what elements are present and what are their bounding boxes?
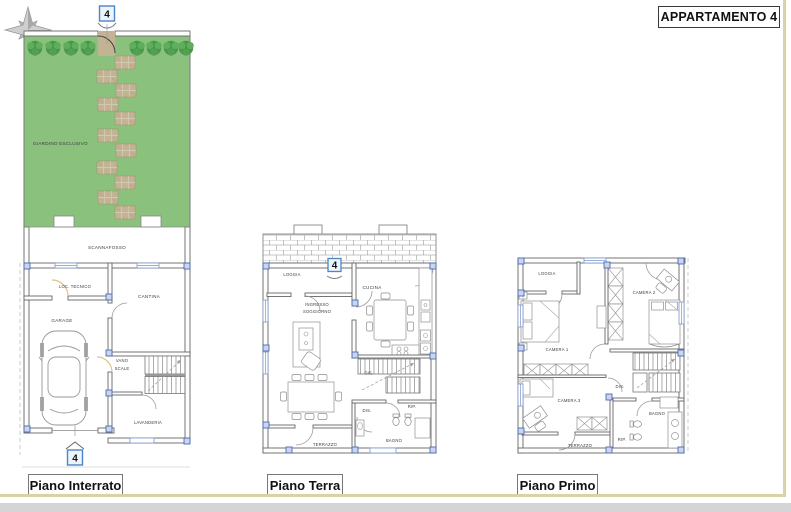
room-label-cantina: CANTINA bbox=[138, 294, 161, 299]
kitchen-table bbox=[367, 293, 414, 347]
dining-table bbox=[281, 375, 342, 420]
garden: GIARDINO ESCLUSIVO bbox=[24, 31, 194, 227]
door-arc bbox=[142, 395, 156, 409]
door-arc bbox=[97, 357, 112, 372]
plan-primo: LOGGIA CAMERA 2 bbox=[518, 258, 688, 453]
paved-band bbox=[263, 234, 436, 263]
svg-text:4: 4 bbox=[104, 10, 110, 21]
room-label-rip-terra: RIP. bbox=[408, 404, 416, 409]
wardrobe-vertical bbox=[608, 268, 623, 340]
svg-text:SOGGIORNO: SOGGIORNO bbox=[303, 309, 332, 314]
floorplan-drawing: N GIARDINO ESCLUSIVO 4 bbox=[0, 0, 791, 512]
room-label-dis-primo: DIS. bbox=[616, 384, 625, 389]
window-bottom-strip bbox=[0, 503, 791, 512]
room-label-giardino: GIARDINO ESCLUSIVO bbox=[33, 141, 88, 146]
door-arc bbox=[296, 428, 313, 445]
bed-camera2 bbox=[649, 300, 680, 347]
living-cabinet bbox=[293, 322, 322, 371]
room-label-rip-primo: RIP. bbox=[618, 437, 626, 442]
car-icon bbox=[39, 331, 89, 425]
room-label-dis2: DIS. bbox=[363, 408, 372, 413]
bed-camera3 bbox=[520, 379, 553, 397]
unit-marker-bottom: 4 bbox=[66, 442, 84, 465]
sheet-border-bottom bbox=[0, 494, 786, 497]
room-label-ingresso: INGRESSO bbox=[305, 302, 329, 307]
scannafosso: SCANNAFOSSO bbox=[24, 227, 190, 263]
window bbox=[263, 300, 268, 322]
room-label-garage: GARAGE bbox=[51, 318, 72, 323]
svg-text:4: 4 bbox=[72, 454, 78, 465]
window bbox=[518, 305, 523, 327]
room-label-bagno-terra: BAGNO bbox=[386, 438, 403, 443]
desk-camera3 bbox=[523, 406, 552, 435]
plan-terra: LOGGIA 4 INGRESSO SOGGIORNO CUCINA bbox=[263, 225, 436, 453]
unit-marker-terra: 4 bbox=[327, 259, 342, 279]
room-label-terrazzo-primo: TERRAZZO bbox=[568, 443, 593, 448]
room-label-bagno-primo: BAGNO bbox=[649, 411, 666, 416]
room-label-lavanderia: LAVANDERIA bbox=[134, 420, 162, 425]
room-label-vano-scale: VANO bbox=[116, 358, 129, 363]
door-arc bbox=[590, 344, 605, 359]
room-label-terrazzo-terra: TERRAZZO bbox=[313, 442, 338, 447]
drawing-sheet: N GIARDINO ESCLUSIVO 4 bbox=[0, 0, 791, 512]
room-label-camera3: CAMERA 3 bbox=[558, 398, 581, 403]
desk-camera2 bbox=[651, 269, 679, 297]
room-label-loggia-terra: LOGGIA bbox=[283, 272, 300, 277]
window bbox=[370, 448, 396, 453]
room-label-loggia-primo: LOGGIA bbox=[538, 271, 555, 276]
room-label-camera1: CAMERA 1 bbox=[546, 347, 569, 352]
window bbox=[130, 438, 154, 443]
window bbox=[137, 263, 159, 268]
wardrobe-camera3 bbox=[577, 417, 607, 430]
bathroom-fixtures-terra bbox=[356, 414, 430, 438]
door-arc bbox=[112, 303, 127, 318]
window bbox=[55, 263, 77, 268]
window bbox=[518, 384, 523, 406]
garden-wall bbox=[24, 31, 98, 36]
window bbox=[263, 352, 268, 374]
window-well bbox=[141, 216, 161, 227]
room-label-loc-tecnico: LOC. TECNICO bbox=[59, 284, 92, 289]
room-label-cucina: CUCINA bbox=[362, 285, 382, 290]
room-label-camera2: CAMERA 2 bbox=[633, 290, 656, 295]
window bbox=[584, 258, 606, 263]
drawing-title: APPARTAMENTO 4 bbox=[658, 6, 780, 28]
stairs-terra bbox=[358, 359, 420, 393]
sheet-border-right bbox=[783, 0, 786, 495]
bathroom-fixtures-primo bbox=[630, 397, 682, 448]
stairs-interrato bbox=[145, 356, 185, 394]
svg-text:SCALE: SCALE bbox=[115, 366, 130, 371]
room-label-dis1: DIS. bbox=[365, 371, 374, 376]
plan-interrato: LOC. TECNICO CANTINA GARAGE VANO SCALE L… bbox=[20, 263, 190, 467]
window bbox=[679, 302, 684, 324]
window-well bbox=[54, 216, 74, 227]
room-label-scannafosso: SCANNAFOSSO bbox=[88, 245, 126, 250]
bed-camera1 bbox=[519, 292, 559, 350]
stairs-primo bbox=[633, 353, 680, 392]
dresser bbox=[597, 306, 606, 328]
svg-text:4: 4 bbox=[332, 261, 338, 272]
